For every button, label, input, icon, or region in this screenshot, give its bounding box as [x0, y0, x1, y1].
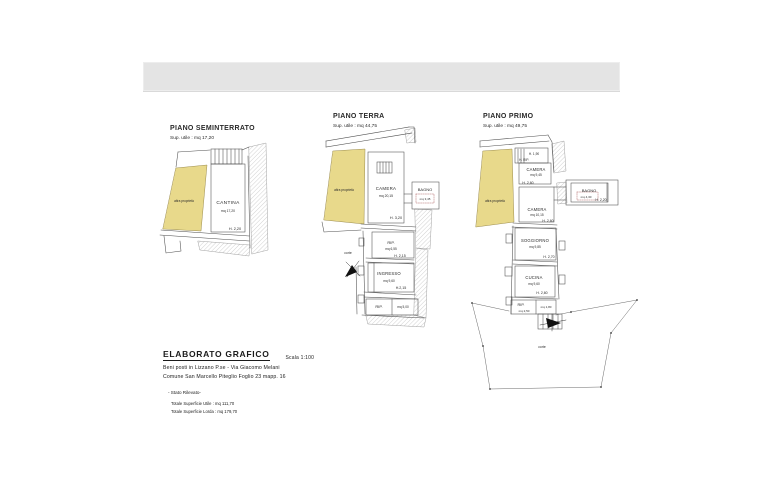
title-block-address-line1: Beni posti in Lizzano P.se - Via Giacomo…: [163, 365, 383, 371]
room-height-camera: H. 3,20: [390, 216, 402, 220]
attic-height-label: H. 1,90: [529, 152, 540, 156]
room-area-rip: mq 6,55: [385, 247, 397, 251]
other-property-label: altra proprietà: [485, 199, 505, 203]
room-height-cantina: H. 2,20: [229, 227, 241, 231]
title-block-total-net: Totale Superficie Utile : mq 111,70: [171, 401, 383, 406]
plan-title: PIANO SEMINTERRATO: [170, 125, 255, 132]
room-label-ingresso: INGRESSO: [377, 271, 401, 276]
floor-plan-sheet: PIANO SEMINTERRATO Sup. utile : mq 17,20…: [0, 0, 764, 492]
room-area-bagno: mq 4,30: [581, 195, 592, 199]
room-label-bagno: BAGNO: [418, 187, 432, 192]
room-area-camera: mq 20,15: [379, 194, 393, 198]
room-area-rip2: mq 5,00: [397, 305, 409, 309]
title-block-address-line2: Comune San Marcello Piteglio Foglio 23 m…: [163, 374, 383, 380]
room-cantina-outline: [211, 164, 245, 232]
room-label-rip2: RIP.: [375, 304, 382, 309]
plan-drawing: PIANO SEMINTERRATO Sup. utile : mq 17,20…: [0, 0, 764, 492]
room-area-bagno: mq 3,45: [420, 197, 431, 201]
room-label-bagno: BAGNO: [582, 188, 596, 193]
room-label-camera: CAMERA: [376, 186, 397, 191]
room-label-rip: RIP.: [387, 240, 394, 245]
stairs: [377, 162, 392, 173]
room-label-cucina: CUCINA: [525, 275, 542, 280]
plan-subtitle: Sup. utile : mq 17,20: [170, 135, 214, 141]
plan-subtitle: Sup. utile : mq 49,75: [483, 123, 527, 129]
room-label-camera2: CAMERA: [527, 207, 546, 212]
plan-primo-labels: PIANO PRIMO Sup. utile : mq 49,75 altra …: [483, 113, 607, 349]
room-area-soggiorno: mq 9,85: [529, 245, 541, 249]
room-label-camera1: CAMERA: [526, 167, 545, 172]
room-height-cucina: H. 2,60: [536, 291, 547, 295]
room-area-rip: mq 2,50: [519, 309, 530, 313]
room-height-rip: H. 2,15: [394, 254, 406, 258]
room-area2-rip: mq 1,80: [541, 305, 552, 309]
court-label: corte: [538, 345, 546, 349]
room-height-bagno: H. 2,20: [595, 198, 606, 202]
room-label-soggiorno: SOGGIORNO: [521, 238, 550, 243]
room-label-cantina: CANTINA: [216, 200, 240, 206]
title-block-state: - Stato Rilevato-: [168, 390, 383, 395]
room-area-camera1: mq 9,45: [530, 173, 542, 177]
other-property-area: [163, 165, 207, 231]
stairs: [211, 149, 242, 164]
room-area-cucina: mq 9,60: [528, 282, 540, 286]
other-property-label: altra proprietà: [174, 199, 194, 203]
courtyard-boundary: [471, 299, 638, 390]
court-label: corte: [344, 251, 352, 255]
title-block-title: ELABORATO GRAFICO: [163, 349, 270, 361]
plan-terra-linework: [322, 127, 439, 327]
title-block-scale: Scala 1:100: [286, 355, 315, 361]
room-ingresso-outline: [368, 263, 414, 292]
room-height-ingresso: H.2,15: [396, 286, 407, 290]
room-area-ingresso: mq 9,60: [383, 279, 395, 283]
title-block: ELABORATO GRAFICO Scala 1:100 Beni posti…: [163, 349, 383, 414]
attic-rip-label: H. RIP.: [519, 158, 529, 162]
room-height-camera1: H. 2,60: [522, 181, 533, 185]
room-area-cantina: mq 17,20: [221, 209, 235, 213]
plan-title: PIANO TERRA: [333, 113, 385, 120]
other-property-label: altra proprietà: [334, 188, 354, 192]
room-area-camera2: mq 10,15: [530, 213, 544, 217]
plan-subtitle: Sup. utile : mq 44,75: [333, 123, 377, 129]
room-height-camera2: H. 2,60: [542, 219, 553, 223]
other-property-area: [324, 149, 365, 224]
room-rip-outline: [372, 232, 414, 258]
other-property-area: [476, 149, 514, 227]
title-block-total-gross: Totale Superficie Lorda : mq 179,70: [171, 409, 383, 414]
room-height-soggiorno: H. 2,70: [543, 255, 554, 259]
room-label-rip: RIP.: [518, 303, 525, 307]
plan-primo-linework: [471, 135, 638, 390]
plan-title: PIANO PRIMO: [483, 113, 534, 120]
